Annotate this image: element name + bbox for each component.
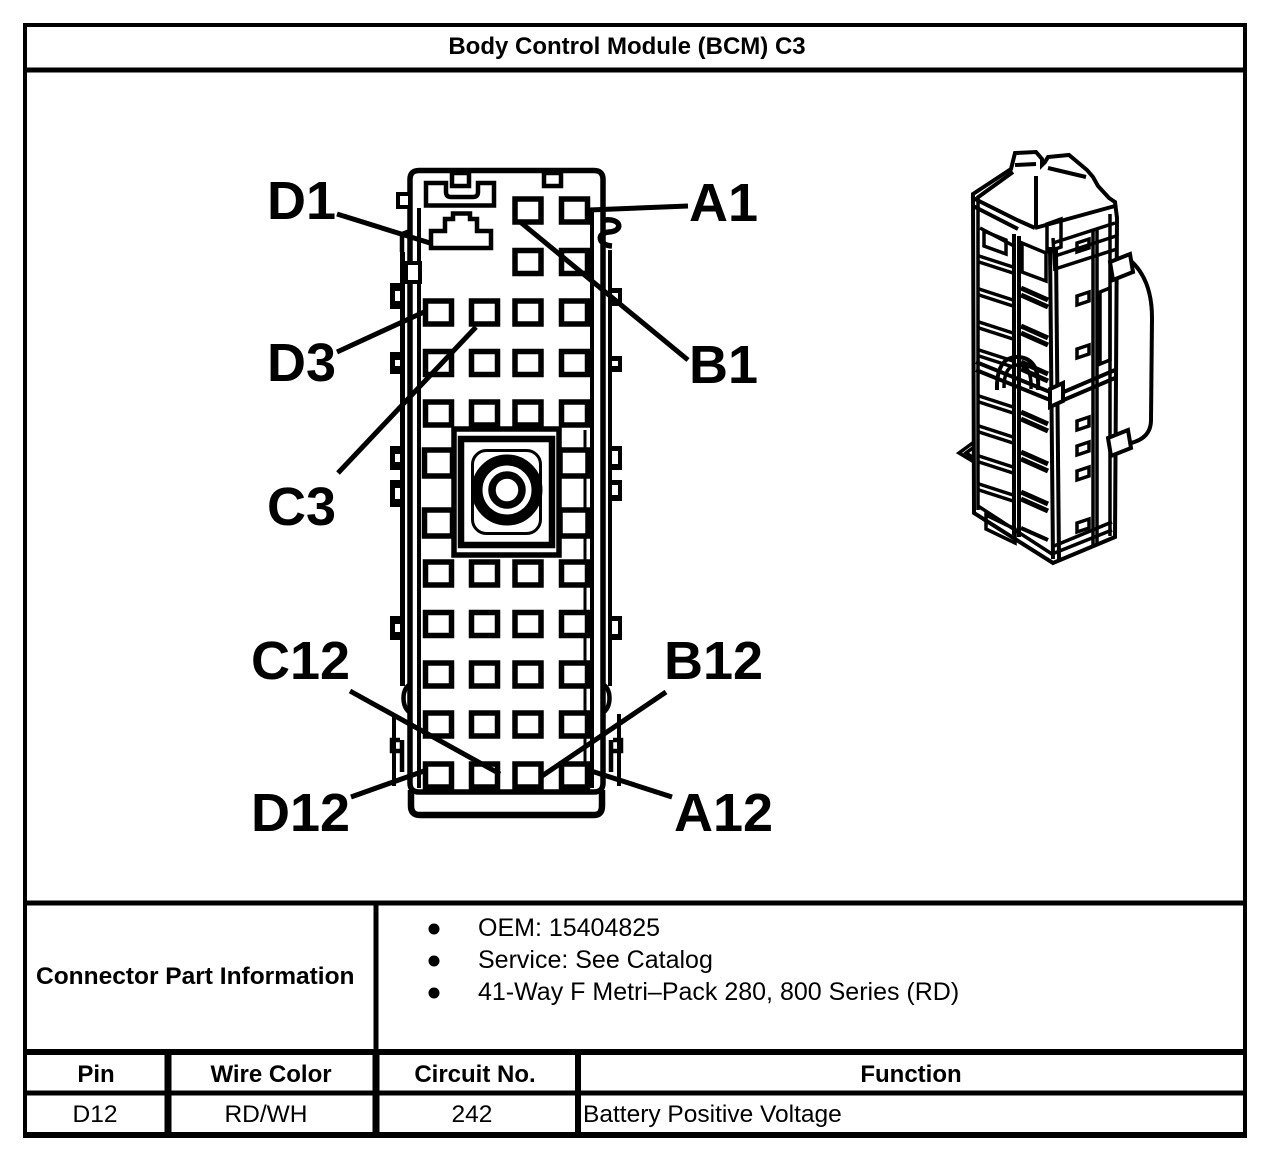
svg-text:Connector Part Information: Connector Part Information [36, 963, 355, 990]
svg-text:RD/WH: RD/WH [224, 1101, 307, 1128]
svg-text:Pin: Pin [77, 1061, 114, 1088]
svg-text:Wire Color: Wire Color [210, 1061, 331, 1088]
svg-text:B1: B1 [689, 335, 758, 395]
svg-text:A1: A1 [689, 173, 758, 233]
svg-text:D1: D1 [267, 171, 336, 231]
svg-text:B12: B12 [664, 631, 763, 691]
svg-text:C3: C3 [267, 477, 336, 537]
svg-text:41-Way F Metri–Pack 280, 800 S: 41-Way F Metri–Pack 280, 800 Series (RD) [478, 978, 959, 1006]
svg-text:D3: D3 [267, 333, 336, 393]
svg-text:242: 242 [452, 1101, 493, 1128]
svg-text:Circuit No.: Circuit No. [414, 1061, 535, 1088]
svg-text:A12: A12 [674, 783, 773, 843]
svg-text:OEM: 15404825: OEM: 15404825 [478, 914, 660, 942]
svg-text:D12: D12 [73, 1101, 118, 1128]
svg-text:C12: C12 [251, 631, 350, 691]
svg-text:Function: Function [860, 1061, 961, 1088]
svg-text:Service: See Catalog: Service: See Catalog [478, 946, 713, 974]
svg-text:Battery Positive Voltage: Battery Positive Voltage [583, 1101, 842, 1128]
svg-text:D12: D12 [251, 783, 350, 843]
svg-text:Body Control Module (BCM) C3: Body Control Module (BCM) C3 [448, 33, 805, 60]
